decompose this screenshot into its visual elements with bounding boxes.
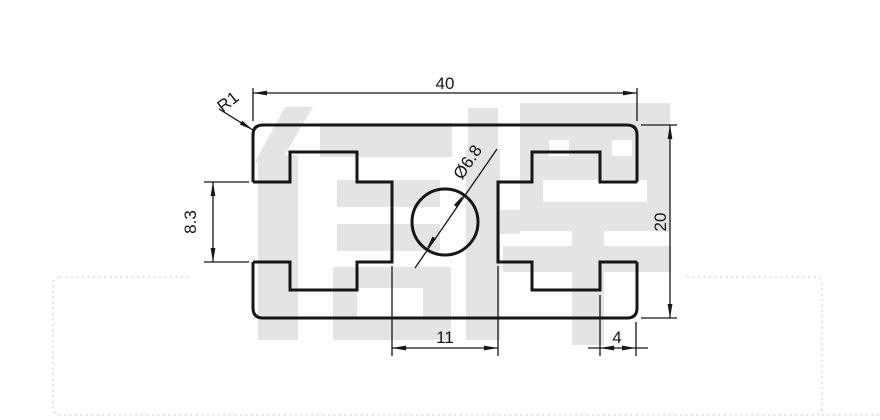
- dim-overall-width-text: 40: [436, 74, 455, 93]
- watermark-stroke: [520, 103, 670, 231]
- dim-center-web-text: 11: [436, 328, 454, 347]
- dim-slot-opening-text: 8.3: [181, 210, 200, 234]
- profile-section-drawing: 40 20 8.3 11: [0, 0, 880, 420]
- watermark-stroke: [337, 180, 440, 207]
- watermark-hole: [612, 140, 632, 156]
- watermark-hole: [357, 288, 423, 318]
- dim-side-wall-text: 4: [612, 328, 621, 347]
- watermark-stroke: [466, 150, 500, 340]
- dim-overall-height-text: 20: [651, 213, 670, 232]
- watermark-stroke: [466, 210, 520, 234]
- watermark-hole: [549, 140, 569, 156]
- cad-drawing-canvas: 40 20 8.3 11: [0, 0, 880, 420]
